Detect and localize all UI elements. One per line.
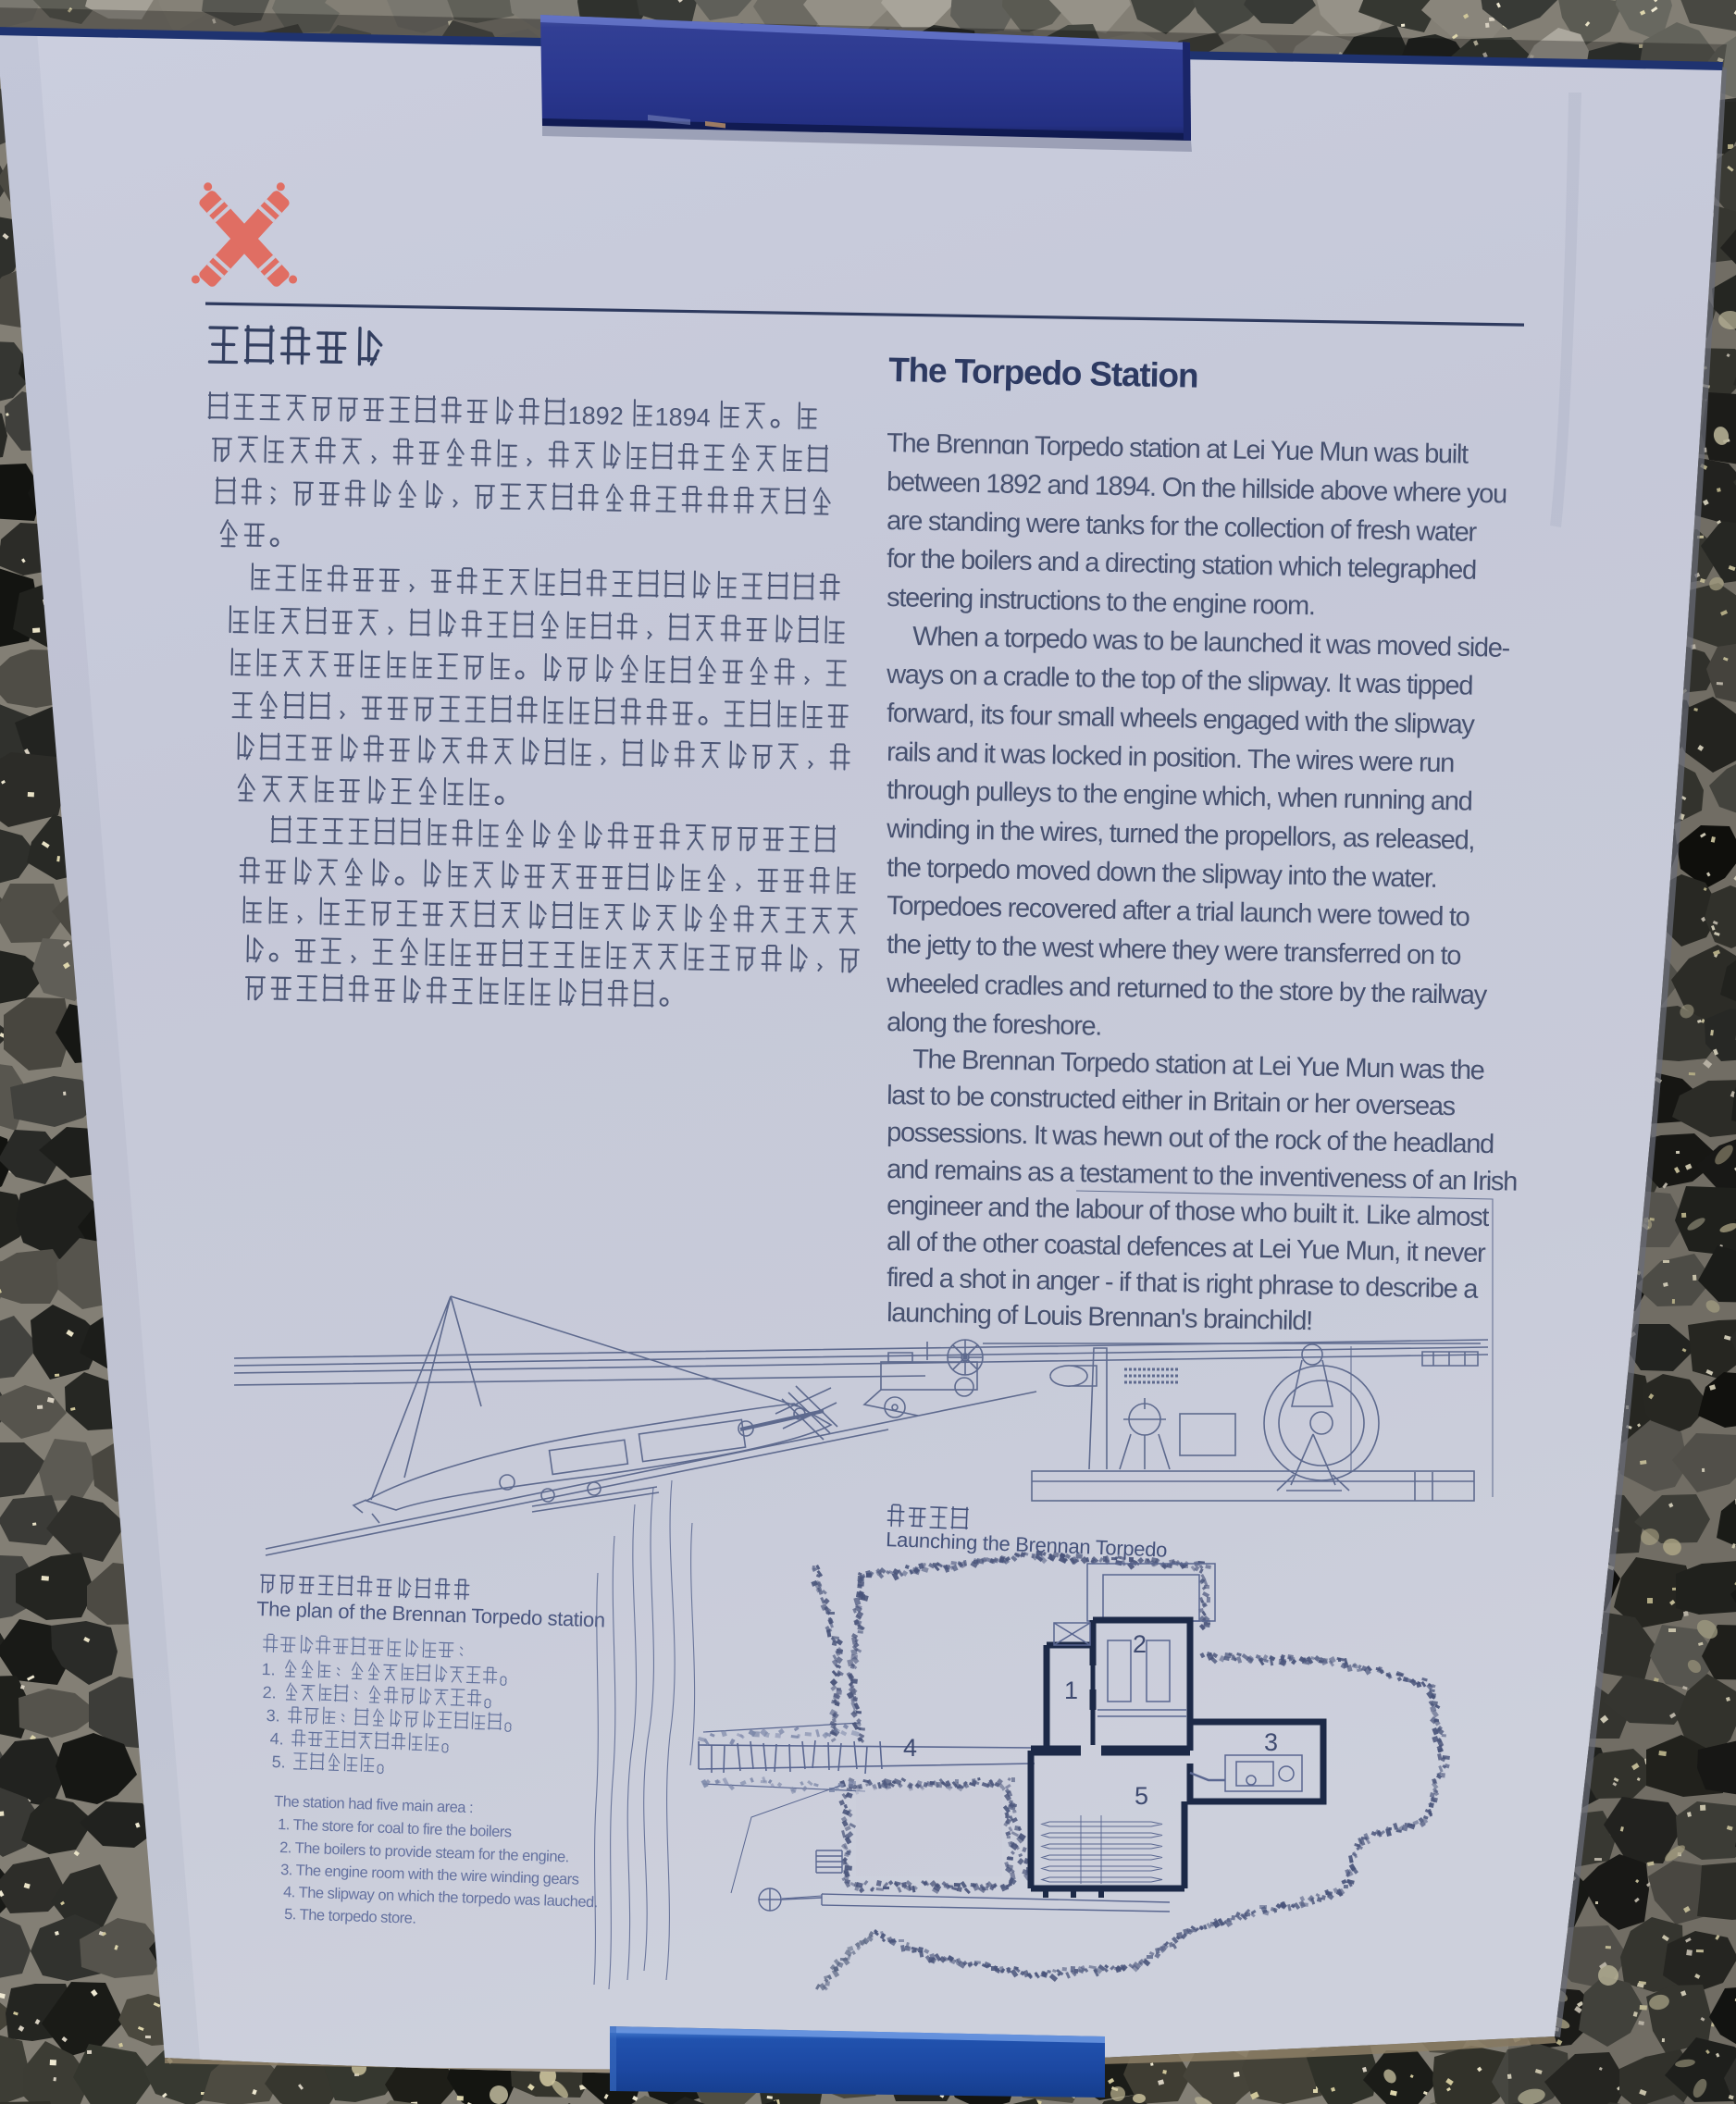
svg-text:3.: 3. xyxy=(266,1706,280,1725)
svg-text:4.: 4. xyxy=(269,1729,284,1748)
svg-text:2: 2 xyxy=(1133,1630,1147,1658)
svg-text:2.: 2. xyxy=(262,1683,277,1702)
svg-text:5.: 5. xyxy=(271,1752,286,1771)
svg-text:The Torpedo Station: The Torpedo Station xyxy=(888,351,1198,395)
svg-text:along the foreshore.: along the foreshore. xyxy=(887,1008,1102,1042)
svg-text:3: 3 xyxy=(1264,1728,1278,1756)
svg-text:1892: 1892 xyxy=(567,402,624,430)
svg-text:4: 4 xyxy=(903,1734,917,1762)
svg-text:5: 5 xyxy=(1135,1782,1148,1810)
svg-text:1.: 1. xyxy=(261,1660,276,1678)
svg-text:1: 1 xyxy=(1064,1677,1078,1704)
svg-text:1894: 1894 xyxy=(654,402,711,431)
